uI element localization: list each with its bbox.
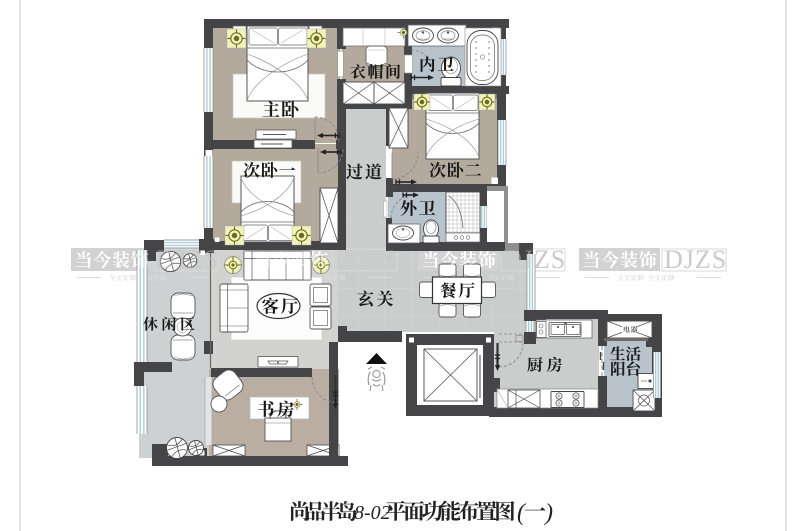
svg-text:DJZS: DJZS <box>664 245 727 274</box>
svg-text:): ) <box>543 500 553 526</box>
svg-text:8-02: 8-02 <box>354 502 391 524</box>
svg-text:(: ( <box>517 500 527 526</box>
svg-text:DJZS: DJZS <box>335 245 398 274</box>
svg-text:DJZS: DJZS <box>156 245 219 274</box>
svg-text:DJZS: DJZS <box>503 245 566 274</box>
